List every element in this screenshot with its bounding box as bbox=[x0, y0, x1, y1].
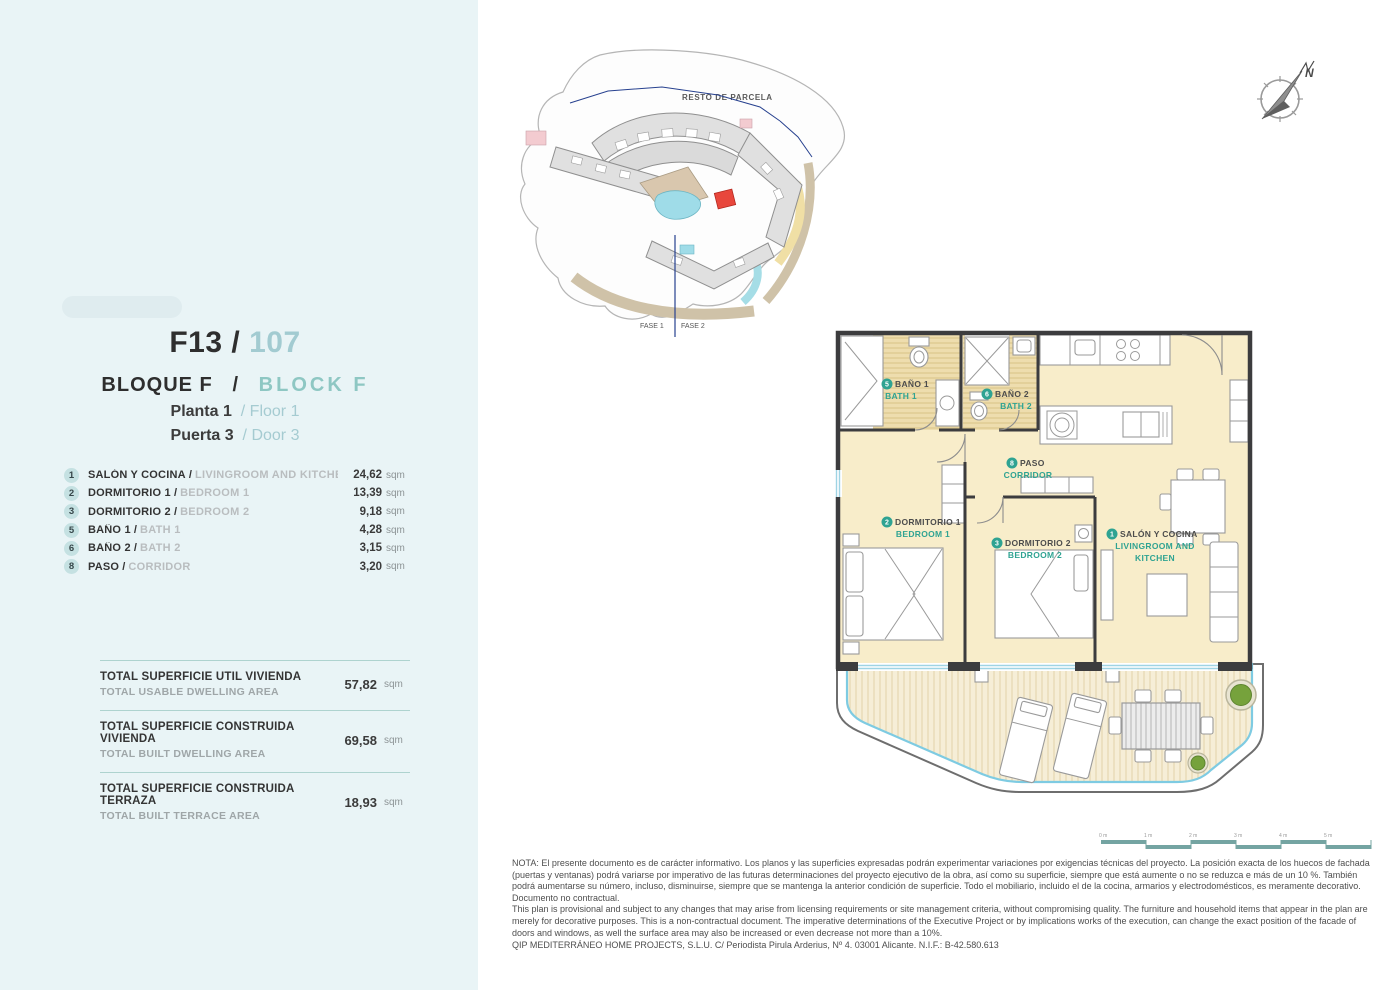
room-name-en: BATH 2 bbox=[140, 542, 181, 554]
nightstand bbox=[843, 642, 859, 654]
room-badge: 5 bbox=[64, 523, 79, 538]
terrace bbox=[837, 664, 1263, 792]
room-row: 2 DORMITORIO 1 / BEDROOM 1 13,39 sqm bbox=[64, 484, 412, 502]
total-label-en: TOTAL USABLE DWELLING AREA bbox=[100, 686, 336, 698]
room-name-es: SALÓN Y COCINA bbox=[88, 469, 186, 481]
fase2-label: FASE 2 bbox=[681, 323, 705, 330]
room-badge: 1 bbox=[64, 468, 79, 483]
room-badge: 2 bbox=[64, 486, 79, 501]
room-area-unit: sqm bbox=[382, 506, 412, 517]
room-name-en: BATH 1 bbox=[140, 524, 181, 536]
room-area: 4,28 bbox=[338, 524, 382, 536]
svg-text:5 m: 5 m bbox=[1324, 833, 1332, 839]
vanity bbox=[936, 380, 959, 426]
totals-section: TOTAL SUPERFICIE UTIL VIVIENDA TOTAL USA… bbox=[100, 660, 410, 834]
total-label-en: TOTAL BUILT TERRACE AREA bbox=[100, 810, 336, 822]
room-area-unit: sqm bbox=[382, 488, 412, 499]
door-en: Door 3 bbox=[251, 427, 299, 444]
svg-text:4 m: 4 m bbox=[1279, 833, 1287, 839]
room-area-unit: sqm bbox=[382, 561, 412, 572]
total-unit: sqm bbox=[384, 679, 410, 690]
fase1-label: FASE 1 bbox=[640, 323, 664, 330]
floor-line: Planta 1 / Floor 1 bbox=[20, 403, 450, 421]
pillow bbox=[846, 552, 863, 592]
room-area-unit: sqm bbox=[382, 470, 412, 481]
svg-text:1: 1 bbox=[1110, 532, 1114, 539]
total-label-en: TOTAL BUILT DWELLING AREA bbox=[100, 748, 336, 760]
svg-text:LIVINGROOM AND: LIVINGROOM AND bbox=[1115, 541, 1194, 551]
unit-code: F13 bbox=[169, 326, 222, 359]
room-badge: 3 bbox=[64, 504, 79, 519]
svg-text:DORMITORIO 2: DORMITORIO 2 bbox=[1005, 538, 1071, 548]
tv-console bbox=[1101, 550, 1113, 620]
room-row: 3 DORMITORIO 2 / BEDROOM 2 9,18 sqm bbox=[64, 503, 412, 521]
pillow bbox=[846, 596, 863, 636]
company-line: QIP MEDITERRÁNEO HOME PROJECTS, S.L.U. C… bbox=[512, 940, 1370, 952]
floor-en: Floor 1 bbox=[250, 403, 300, 420]
wardrobe bbox=[942, 465, 964, 523]
room-name-en: LIVINGROOM AND KITCHEN bbox=[195, 469, 338, 481]
total-label-es: TOTAL SUPERFICIE UTIL VIVIENDA bbox=[100, 671, 336, 683]
svg-text:2: 2 bbox=[885, 520, 889, 527]
unit-header: F13 / 107 BLOQUE F / BLOCK F Planta 1 / … bbox=[20, 326, 450, 445]
legal-note: NOTA: El presente documento es de caráct… bbox=[512, 858, 1370, 952]
room-area: 9,18 bbox=[338, 506, 382, 518]
door-line: Puerta 3 / Door 3 bbox=[20, 427, 450, 445]
room-name-en: BEDROOM 2 bbox=[180, 506, 249, 518]
room-row: 5 BAÑO 1 / BATH 1 4,28 sqm bbox=[64, 521, 412, 539]
svg-text:BATH 1: BATH 1 bbox=[885, 391, 917, 401]
unit-info-panel: F13 / 107 BLOQUE F / BLOCK F Planta 1 / … bbox=[0, 0, 478, 990]
block-es: BLOQUE F bbox=[101, 374, 212, 396]
room-row: 8 PASO / CORRIDOR 3,20 sqm bbox=[64, 557, 412, 575]
pink-patch bbox=[740, 119, 752, 128]
door-sep: / bbox=[243, 427, 247, 444]
unit-code-line: F13 / 107 bbox=[20, 326, 450, 360]
svg-text:BAÑO 2: BAÑO 2 bbox=[995, 389, 1029, 399]
coffee-table bbox=[1147, 574, 1187, 616]
door-es: Puerta 3 bbox=[171, 427, 234, 444]
window bbox=[834, 470, 842, 497]
svg-text:1 m: 1 m bbox=[1144, 833, 1152, 839]
site-plan: RESTO DE PARCELA bbox=[512, 45, 862, 350]
kitchen-sink bbox=[1075, 340, 1095, 355]
svg-text:3: 3 bbox=[995, 541, 999, 548]
room-area: 24,62 bbox=[338, 469, 382, 481]
total-unit: sqm bbox=[384, 797, 410, 808]
room-row: 6 BAÑO 2 / BATH 2 3,15 sqm bbox=[64, 539, 412, 557]
svg-text:6: 6 bbox=[985, 392, 989, 399]
svg-text:8: 8 bbox=[1010, 461, 1014, 468]
total-value: 69,58 bbox=[344, 733, 377, 748]
unit-number: 107 bbox=[249, 326, 301, 359]
total-unit: sqm bbox=[384, 735, 410, 746]
room-name-es: DORMITORIO 1 bbox=[88, 487, 171, 499]
svg-text:PASO: PASO bbox=[1020, 458, 1045, 468]
room-area: 13,39 bbox=[338, 487, 382, 499]
room-badge: 6 bbox=[64, 541, 79, 556]
total-label-es: TOTAL SUPERFICIE CONSTRUIDA VIVIENDA bbox=[100, 721, 336, 745]
room-name-es: BAÑO 2 bbox=[88, 542, 131, 554]
room-area-unit: sqm bbox=[382, 525, 412, 536]
total-usable-area: TOTAL SUPERFICIE UTIL VIVIENDA TOTAL USA… bbox=[100, 660, 410, 710]
pink-patch bbox=[526, 131, 546, 145]
floor-es: Planta 1 bbox=[171, 403, 232, 420]
svg-text:KITCHEN: KITCHEN bbox=[1135, 553, 1175, 563]
svg-text:0 m: 0 m bbox=[1099, 833, 1107, 839]
room-row: 1 SALÓN Y COCINA / LIVINGROOM AND KITCHE… bbox=[64, 466, 412, 484]
kitchen-counter bbox=[1040, 335, 1170, 365]
svg-text:BAÑO 1: BAÑO 1 bbox=[895, 379, 929, 389]
svg-text:5: 5 bbox=[885, 382, 889, 389]
room-list: 1 SALÓN Y COCINA / LIVINGROOM AND KITCHE… bbox=[64, 466, 412, 576]
cabinet bbox=[1230, 380, 1248, 442]
total-built-dwelling: TOTAL SUPERFICIE CONSTRUIDA VIVIENDA TOT… bbox=[100, 710, 410, 772]
block-sep: / bbox=[232, 374, 239, 396]
total-label-es: TOTAL SUPERFICIE CONSTRUIDA TERRAZA bbox=[100, 783, 336, 807]
legal-note-en: This plan is provisional and subject to … bbox=[512, 904, 1370, 939]
total-value: 18,93 bbox=[344, 795, 377, 810]
room-name-en: BEDROOM 1 bbox=[180, 487, 249, 499]
total-value: 57,82 bbox=[344, 677, 377, 692]
room-name-es: DORMITORIO 2 bbox=[88, 506, 171, 518]
nightstand bbox=[843, 534, 859, 546]
plant-pot bbox=[1226, 680, 1256, 710]
unit-code-sep: / bbox=[231, 326, 240, 359]
svg-text:2 m: 2 m bbox=[1189, 833, 1197, 839]
brochure-page: F13 / 107 BLOQUE F / BLOCK F Planta 1 / … bbox=[0, 0, 1400, 990]
block-en: BLOCK F bbox=[259, 374, 369, 396]
room-badge: 8 bbox=[64, 559, 79, 574]
plant-pot bbox=[1188, 753, 1208, 773]
svg-text:CORRIDOR: CORRIDOR bbox=[1004, 470, 1053, 480]
floor-plan: 5 BAÑO 1 BATH 1 6 BAÑO 2 BATH 2 8 PASO C… bbox=[825, 322, 1335, 867]
legal-note-es: NOTA: El presente documento es de caráct… bbox=[512, 858, 1370, 904]
north-compass-icon: N bbox=[1250, 55, 1320, 130]
scale-bar: 0 m 1 m 2 m 3 m 4 m 5 m bbox=[1093, 830, 1383, 858]
toilet bbox=[909, 337, 929, 346]
svg-text:DORMITORIO 1: DORMITORIO 1 bbox=[895, 517, 961, 527]
room-name-en: CORRIDOR bbox=[128, 561, 190, 573]
room-name-es: BAÑO 1 bbox=[88, 524, 131, 536]
svg-text:SALÓN Y COCINA: SALÓN Y COCINA bbox=[1120, 528, 1198, 539]
room-area: 3,20 bbox=[338, 561, 382, 573]
svg-text:BATH 2: BATH 2 bbox=[1000, 401, 1032, 411]
window bbox=[858, 663, 1218, 671]
floor-sep: / bbox=[241, 403, 245, 420]
wall-unit bbox=[1075, 525, 1092, 542]
total-built-terrace: TOTAL SUPERFICIE CONSTRUIDA TERRAZA TOTA… bbox=[100, 772, 410, 834]
svg-text:3 m: 3 m bbox=[1234, 833, 1242, 839]
block-line: BLOQUE F / BLOCK F bbox=[20, 374, 450, 397]
faded-tab bbox=[62, 296, 182, 318]
north-label: N bbox=[1305, 66, 1314, 80]
room-name-es: PASO bbox=[88, 561, 119, 573]
svg-text:BEDROOM 2: BEDROOM 2 bbox=[1008, 550, 1062, 560]
room-area-unit: sqm bbox=[382, 543, 412, 554]
room-area: 3,15 bbox=[338, 542, 382, 554]
kitchen-island bbox=[1040, 406, 1172, 444]
svg-text:BEDROOM 1: BEDROOM 1 bbox=[896, 529, 950, 539]
pillow bbox=[1074, 555, 1088, 591]
pool-small bbox=[680, 245, 694, 254]
